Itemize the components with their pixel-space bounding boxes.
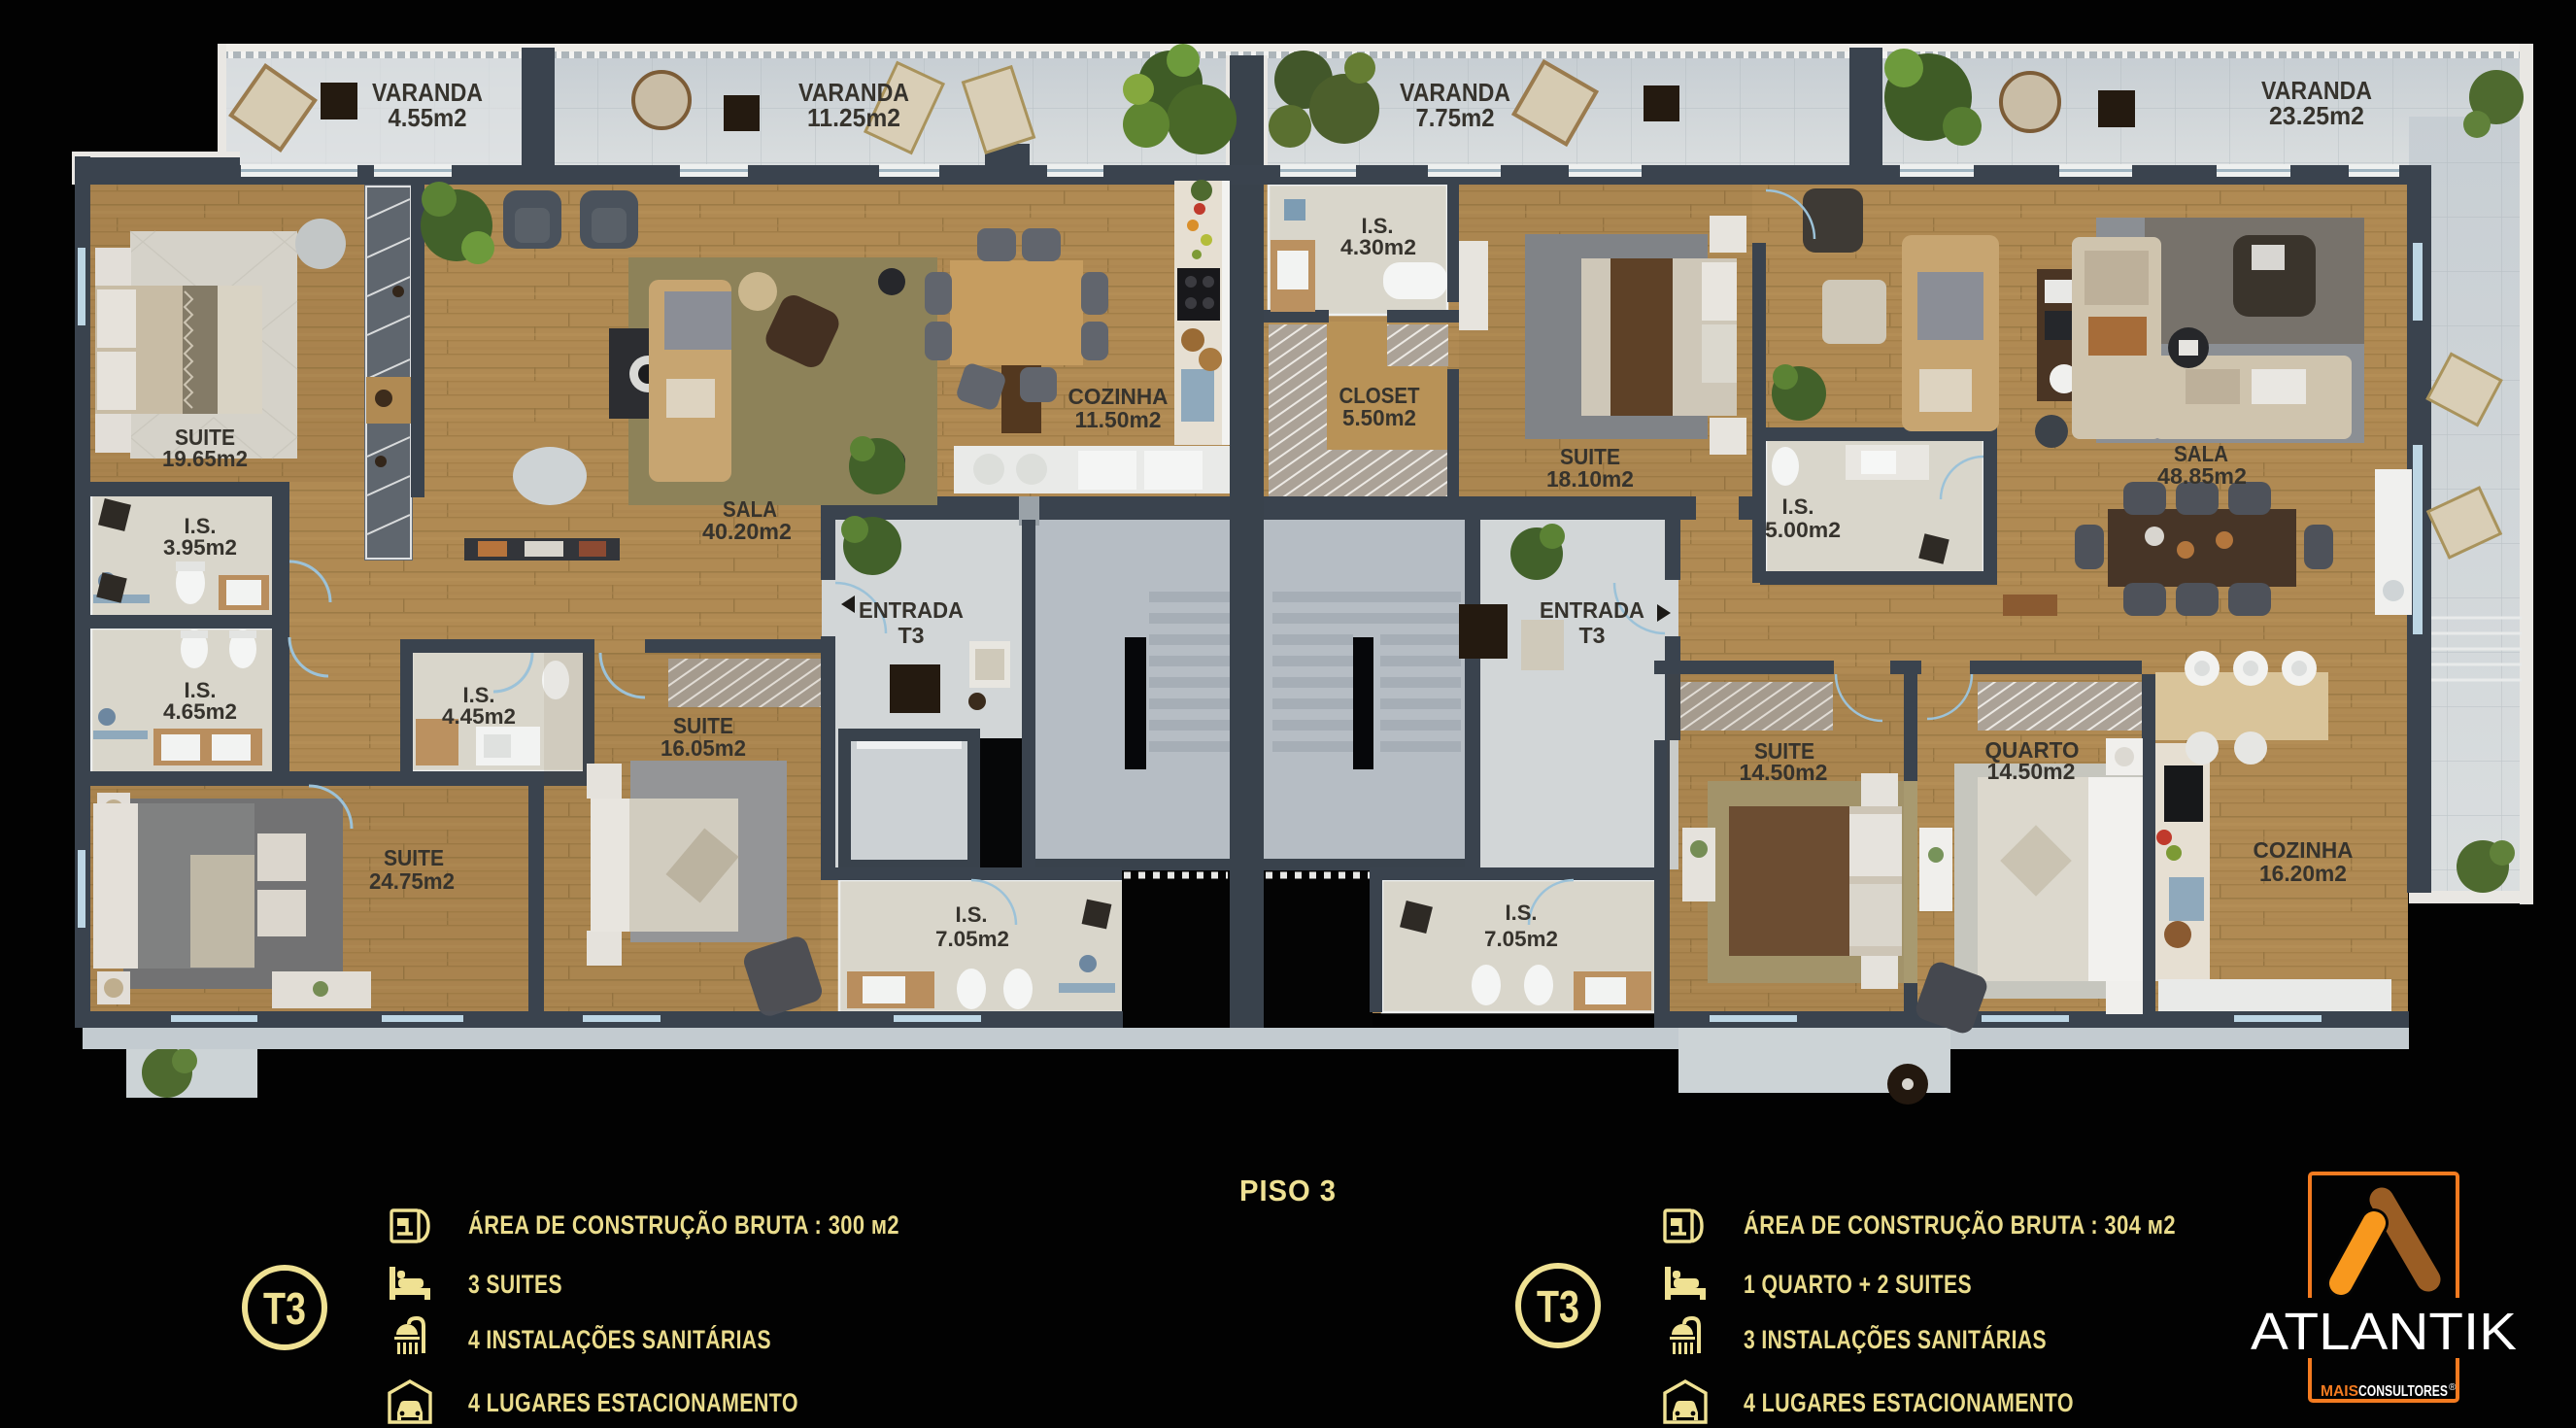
svg-text:CONSULTORES: CONSULTORES — [2358, 1383, 2448, 1400]
svg-text:14.50m2: 14.50m2 — [1740, 760, 1828, 785]
svg-text:11.50m2: 11.50m2 — [1075, 407, 1162, 432]
svg-text:MAIS: MAIS — [2321, 1383, 2358, 1400]
svg-text:ÁREA DE CONSTRUÇÃO BRUTA : 30: ÁREA DE CONSTRUÇÃO BRUTA : 304 м2 — [1744, 1209, 2176, 1240]
svg-text:I.S.: I.S. — [956, 902, 988, 927]
svg-text:5.50m2: 5.50m2 — [1342, 405, 1416, 430]
svg-text:14.50m2: 14.50m2 — [1987, 759, 2076, 784]
svg-text:7.75m2: 7.75m2 — [1416, 103, 1495, 132]
svg-text:4.65m2: 4.65m2 — [163, 699, 237, 724]
svg-text:®: ® — [2449, 1382, 2457, 1393]
svg-text:11.25m2: 11.25m2 — [807, 103, 900, 132]
svg-text:1 QUARTO + 2 SUITES: 1 QUARTO + 2 SUITES — [1744, 1270, 1972, 1299]
svg-text:3 SUITES: 3 SUITES — [468, 1270, 562, 1299]
svg-text:4.30m2: 4.30m2 — [1340, 235, 1416, 259]
svg-text:ÁREA DE CONSTRUÇÃO BRUTA : 30: ÁREA DE CONSTRUÇÃO BRUTA : 300 м2 — [468, 1209, 899, 1240]
svg-text:5.00m2: 5.00m2 — [1765, 518, 1841, 542]
svg-text:3 INSTALAÇÕES SANITÁRIAS: 3 INSTALAÇÕES SANITÁRIAS — [1744, 1324, 2047, 1354]
svg-text:ATLANTIK: ATLANTIK — [2251, 1303, 2517, 1361]
svg-text:T3: T3 — [898, 623, 925, 648]
svg-text:T3: T3 — [1579, 623, 1606, 648]
svg-text:ENTRADA: ENTRADA — [1540, 597, 1644, 623]
svg-text:4 LUGARES ESTACIONAMENTO: 4 LUGARES ESTACIONAMENTO — [1744, 1388, 2074, 1417]
svg-text:4.55m2: 4.55m2 — [389, 103, 467, 132]
svg-text:18.10m2: 18.10m2 — [1546, 466, 1634, 492]
svg-text:T3: T3 — [1537, 1281, 1579, 1332]
svg-text:19.65m2: 19.65m2 — [162, 446, 248, 471]
svg-text:I.S.: I.S. — [1782, 494, 1814, 519]
svg-text:T3: T3 — [263, 1283, 306, 1334]
svg-text:16.20m2: 16.20m2 — [2259, 861, 2347, 886]
svg-text:SUITE: SUITE — [384, 845, 444, 870]
svg-text:48.85m2: 48.85m2 — [2157, 463, 2247, 489]
svg-text:4 LUGARES ESTACIONAMENTO: 4 LUGARES ESTACIONAMENTO — [468, 1388, 798, 1417]
svg-text:7.05m2: 7.05m2 — [935, 927, 1009, 951]
svg-text:40.20m2: 40.20m2 — [702, 519, 792, 544]
svg-text:3.95m2: 3.95m2 — [163, 535, 237, 560]
svg-text:16.05m2: 16.05m2 — [661, 735, 746, 761]
svg-text:4.45m2: 4.45m2 — [442, 704, 516, 729]
svg-text:PISO 3: PISO 3 — [1239, 1173, 1337, 1207]
svg-text:COZINHA: COZINHA — [1068, 384, 1169, 409]
svg-text:4 INSTALAÇÕES SANITÁRIAS: 4 INSTALAÇÕES SANITÁRIAS — [468, 1324, 771, 1354]
svg-text:24.75m2: 24.75m2 — [369, 868, 455, 894]
svg-text:ENTRADA: ENTRADA — [859, 597, 964, 623]
svg-text:I.S.: I.S. — [1506, 901, 1538, 925]
svg-text:23.25m2: 23.25m2 — [2269, 101, 2364, 130]
svg-text:COZINHA: COZINHA — [2254, 837, 2354, 863]
svg-text:7.05m2: 7.05m2 — [1484, 927, 1558, 951]
